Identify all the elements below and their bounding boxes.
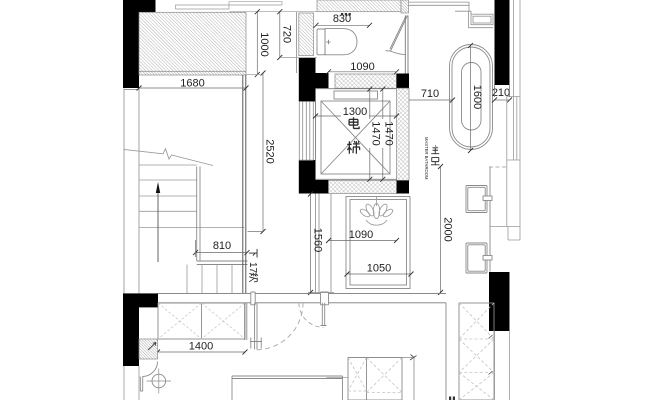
svg-text:720: 720 [281,25,293,43]
svg-text:1050: 1050 [367,263,391,275]
svg-text:1680: 1680 [180,78,204,90]
svg-text:MASTER BATHROOM: MASTER BATHROOM [424,137,429,180]
svg-text:17: 17 [247,262,258,274]
svg-text:2520: 2520 [264,139,276,163]
svg-text:1000: 1000 [258,32,270,56]
svg-text:830: 830 [333,13,351,25]
svg-text:1470: 1470 [370,121,382,145]
svg-text:1090: 1090 [350,61,374,73]
svg-text:1400: 1400 [189,341,213,353]
svg-text:1600: 1600 [471,85,483,109]
svg-text:1470: 1470 [383,121,395,145]
svg-text:810: 810 [213,240,231,252]
svg-text:1560: 1560 [312,228,324,252]
svg-text:1090: 1090 [349,229,373,241]
svg-text:1300: 1300 [343,106,367,118]
svg-text:710: 710 [421,88,439,100]
svg-text:2000: 2000 [442,217,454,241]
